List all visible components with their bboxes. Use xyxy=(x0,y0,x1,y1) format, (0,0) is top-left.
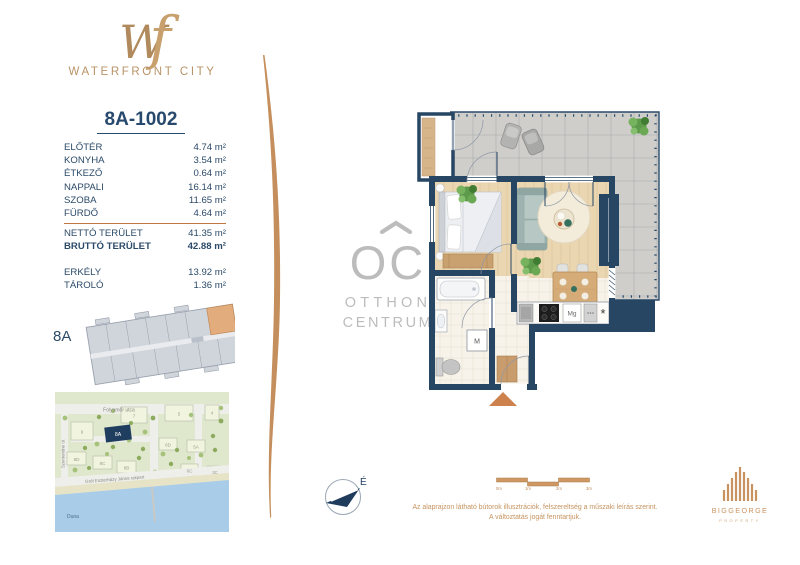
room-name: ÉTKEZŐ xyxy=(64,167,102,180)
disclaimer-line2: A változtatás jogát fenntartjuk. xyxy=(380,513,690,523)
map-building-label: 8D xyxy=(74,457,81,462)
unit-id: 8A-1002 xyxy=(97,109,186,134)
street-top-label: Folyamőr utca xyxy=(103,408,135,414)
room-area: 3.54 m² xyxy=(193,154,226,167)
map-building-label: 6C xyxy=(187,469,194,474)
room-row: SZOBA11.65 m² xyxy=(64,194,226,207)
compass-icon: É xyxy=(318,471,370,523)
orange-divider-rule xyxy=(64,223,226,224)
north-label: É xyxy=(360,475,367,488)
wood-bench xyxy=(443,254,493,268)
kitchen-counter: Mg * xyxy=(517,302,609,324)
river-label: Duna xyxy=(67,514,79,520)
extra-row: ERKÉLY13.92 m² xyxy=(64,266,226,279)
map-building-label: 5A xyxy=(193,445,200,450)
map-building-label: 5 xyxy=(178,412,181,417)
scale-tick: 0m xyxy=(496,486,502,491)
room-row: NAPPALI16.14 m² xyxy=(64,181,226,194)
room-area: 11.65 m² xyxy=(189,194,226,207)
toilet xyxy=(436,358,460,376)
room-area: 4.74 m² xyxy=(193,141,226,154)
washing-machine: M xyxy=(467,330,487,351)
extra-row: TÁROLÓ1.36 m² xyxy=(64,279,226,292)
map-building-label: 6D xyxy=(165,443,172,448)
logo-monogram-f: f xyxy=(149,4,170,72)
round-rug-coffee-table xyxy=(538,191,590,243)
disclaimer-line1: Az alaprajzon látható bútorok illusztrác… xyxy=(380,503,690,513)
microwave-label: Mg xyxy=(567,311,576,318)
entrance-arrow xyxy=(489,392,517,406)
room-area: 0.64 m² xyxy=(193,167,226,180)
total-name: BRUTTÓ TERÜLET xyxy=(64,240,151,253)
microwave: Mg xyxy=(563,304,581,322)
bathroom-sink xyxy=(435,310,447,332)
plant-balcony xyxy=(629,117,650,136)
developer-name: BIGGEORGE xyxy=(712,506,769,515)
map-building-label: 9 xyxy=(81,430,84,435)
room-name: FÜRDŐ xyxy=(64,207,98,220)
area-table: ELŐTÉR4.74 m² KONYHA3.54 m² ÉTKEZŐ0.64 m… xyxy=(64,141,226,292)
room-row: FÜRDŐ4.64 m² xyxy=(64,207,226,220)
street-left-label: Szentendrei út xyxy=(61,439,66,468)
scale-tick: 3m xyxy=(586,486,592,491)
brand-name: WATERFRONT CITY xyxy=(35,66,250,78)
map-building-label: 8B xyxy=(124,466,130,471)
plant-living xyxy=(521,257,542,276)
room-name: SZOBA xyxy=(64,194,97,207)
scale-tick: 1m xyxy=(525,486,531,491)
divider-brush-stroke xyxy=(248,0,288,565)
total-row-gross: BRUTTÓ TERÜLET42.88 m² xyxy=(64,240,226,253)
scale-bar: 0m 1m 2m 3m xyxy=(496,477,596,491)
room-area: 4.64 m² xyxy=(193,207,226,220)
biggeorge-logo: BIGGEORGE PROPERTY xyxy=(700,464,780,532)
scale-tick: 2m xyxy=(556,486,562,491)
extra-area: 13.92 m² xyxy=(188,266,226,279)
building-label: 8A xyxy=(53,328,71,345)
building-plate-diagram xyxy=(85,296,235,391)
room-row: ELŐTÉR4.74 m² xyxy=(64,141,226,154)
location-map: Folyamőr utca Szentendrei út Gróf Eszter… xyxy=(55,392,229,532)
stove xyxy=(539,304,559,322)
map-building-label: 8C xyxy=(100,461,107,466)
fridge-symbol: * xyxy=(600,306,605,321)
total-area: 42.88 m² xyxy=(188,240,226,253)
developer-sub: PROPERTY xyxy=(719,519,761,523)
extra-name: ERKÉLY xyxy=(64,266,101,279)
biggeorge-crown-icon xyxy=(723,467,757,501)
floorplan-brochure-page: Wf WATERFRONT CITY 8A-1002 ELŐTÉR4.74 m²… xyxy=(0,0,800,565)
room-row: KONYHA3.54 m² xyxy=(64,154,226,167)
waterfront-logo: Wf xyxy=(85,4,205,72)
disclaimer: Az alaprajzon látható bútorok illusztrác… xyxy=(380,503,690,522)
room-name: KONYHA xyxy=(64,154,105,167)
map-building-label: 3C xyxy=(212,470,219,475)
highlighted-unit xyxy=(207,304,235,335)
total-name: NETTÓ TERÜLET xyxy=(64,227,143,240)
dishwasher xyxy=(584,304,597,322)
washer-label: M xyxy=(474,339,480,346)
bathtub xyxy=(437,278,485,300)
plant-bedroom xyxy=(457,185,478,204)
room-name: ELŐTÉR xyxy=(64,141,102,154)
unit-title: 8A-1002 xyxy=(60,109,222,134)
room-area: 16.14 m² xyxy=(188,181,226,194)
room-name: NAPPALI xyxy=(64,181,104,194)
apartment-floorplan: M Mg * xyxy=(405,98,665,408)
extra-name: TÁROLÓ xyxy=(64,279,103,292)
room-row: ÉTKEZŐ0.64 m² xyxy=(64,167,226,180)
extra-area: 1.36 m² xyxy=(193,279,226,292)
map-building-label: 4 xyxy=(211,411,214,416)
total-row: NETTÓ TERÜLET41.35 m² xyxy=(64,227,226,240)
map-building-label: 7 xyxy=(133,414,136,419)
map-highlight-label: 8A xyxy=(115,432,122,438)
total-area: 41.35 m² xyxy=(188,227,226,240)
